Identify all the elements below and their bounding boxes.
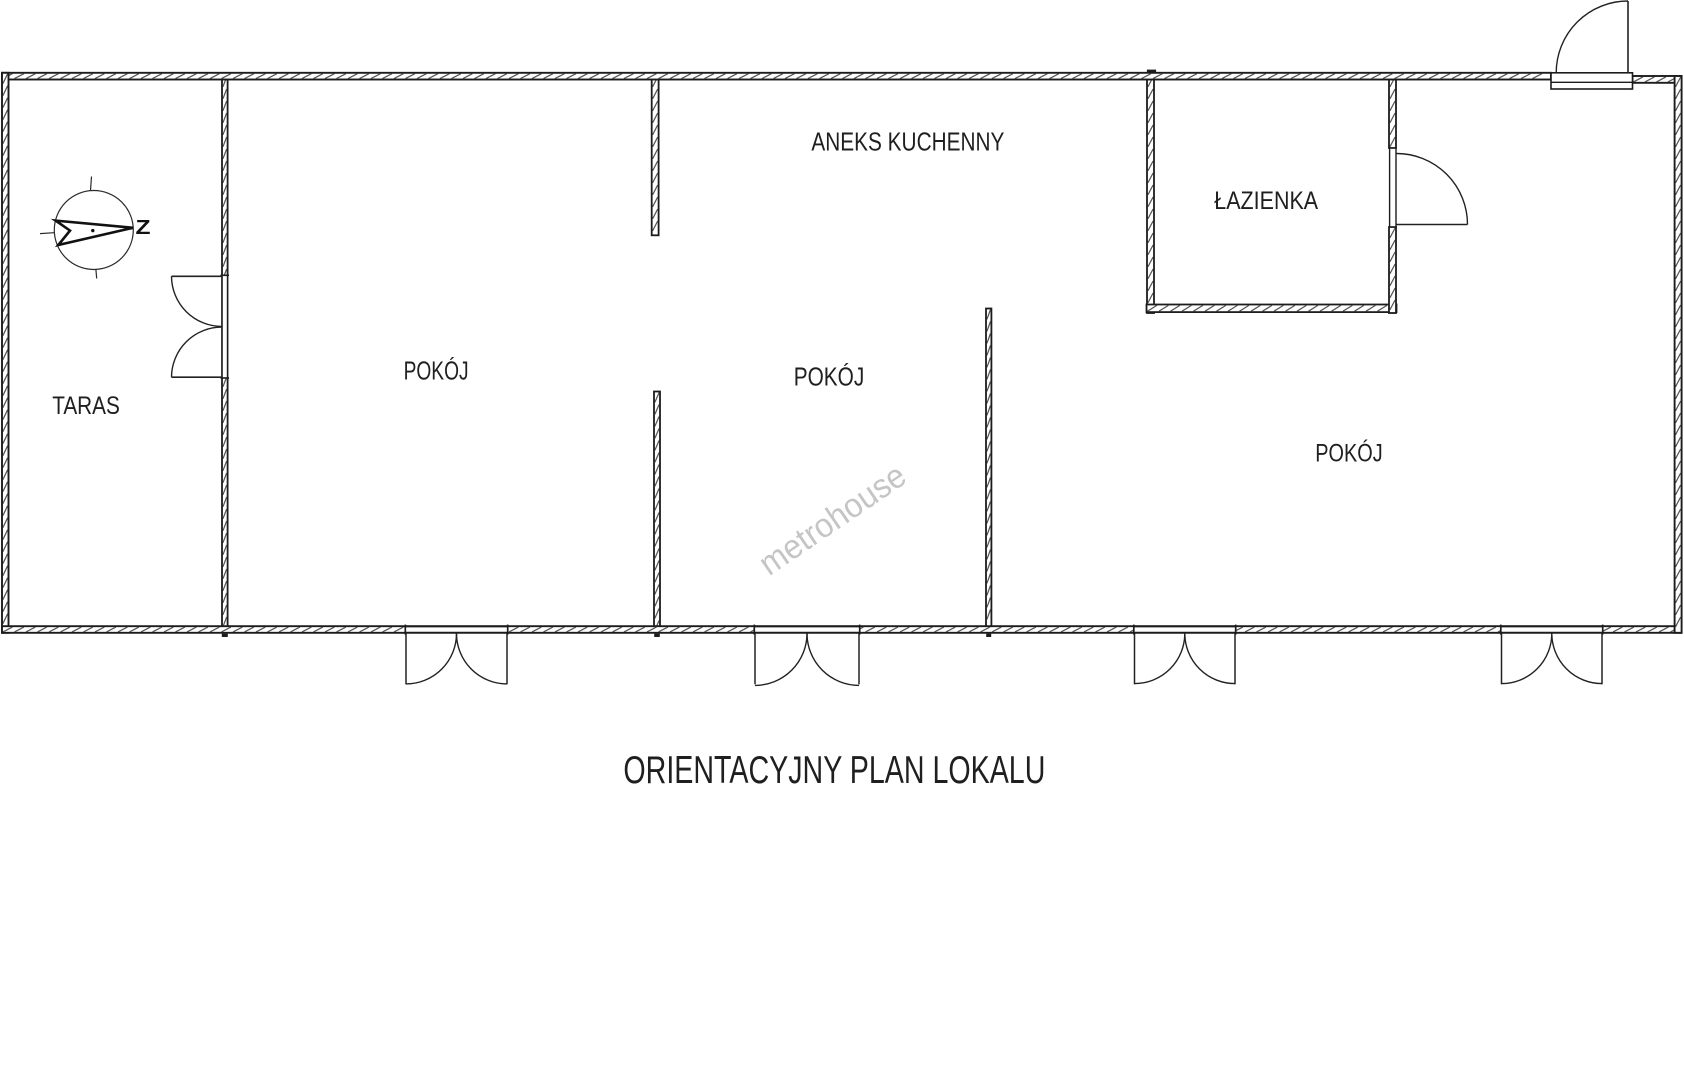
svg-text:POKÓJ: POKÓJ <box>794 361 865 391</box>
svg-text:ORIENTACYJNY PLAN LOKALU: ORIENTACYJNY PLAN LOKALU <box>623 749 1045 792</box>
svg-text:POKÓJ: POKÓJ <box>404 356 469 386</box>
svg-text:Z: Z <box>136 217 151 239</box>
svg-text:ŁAZIENKA: ŁAZIENKA <box>1214 187 1318 215</box>
svg-text:ANEKS KUCHENNY: ANEKS KUCHENNY <box>811 127 1004 157</box>
svg-text:TARAS: TARAS <box>52 392 120 420</box>
svg-text:POKÓJ: POKÓJ <box>1315 439 1382 468</box>
